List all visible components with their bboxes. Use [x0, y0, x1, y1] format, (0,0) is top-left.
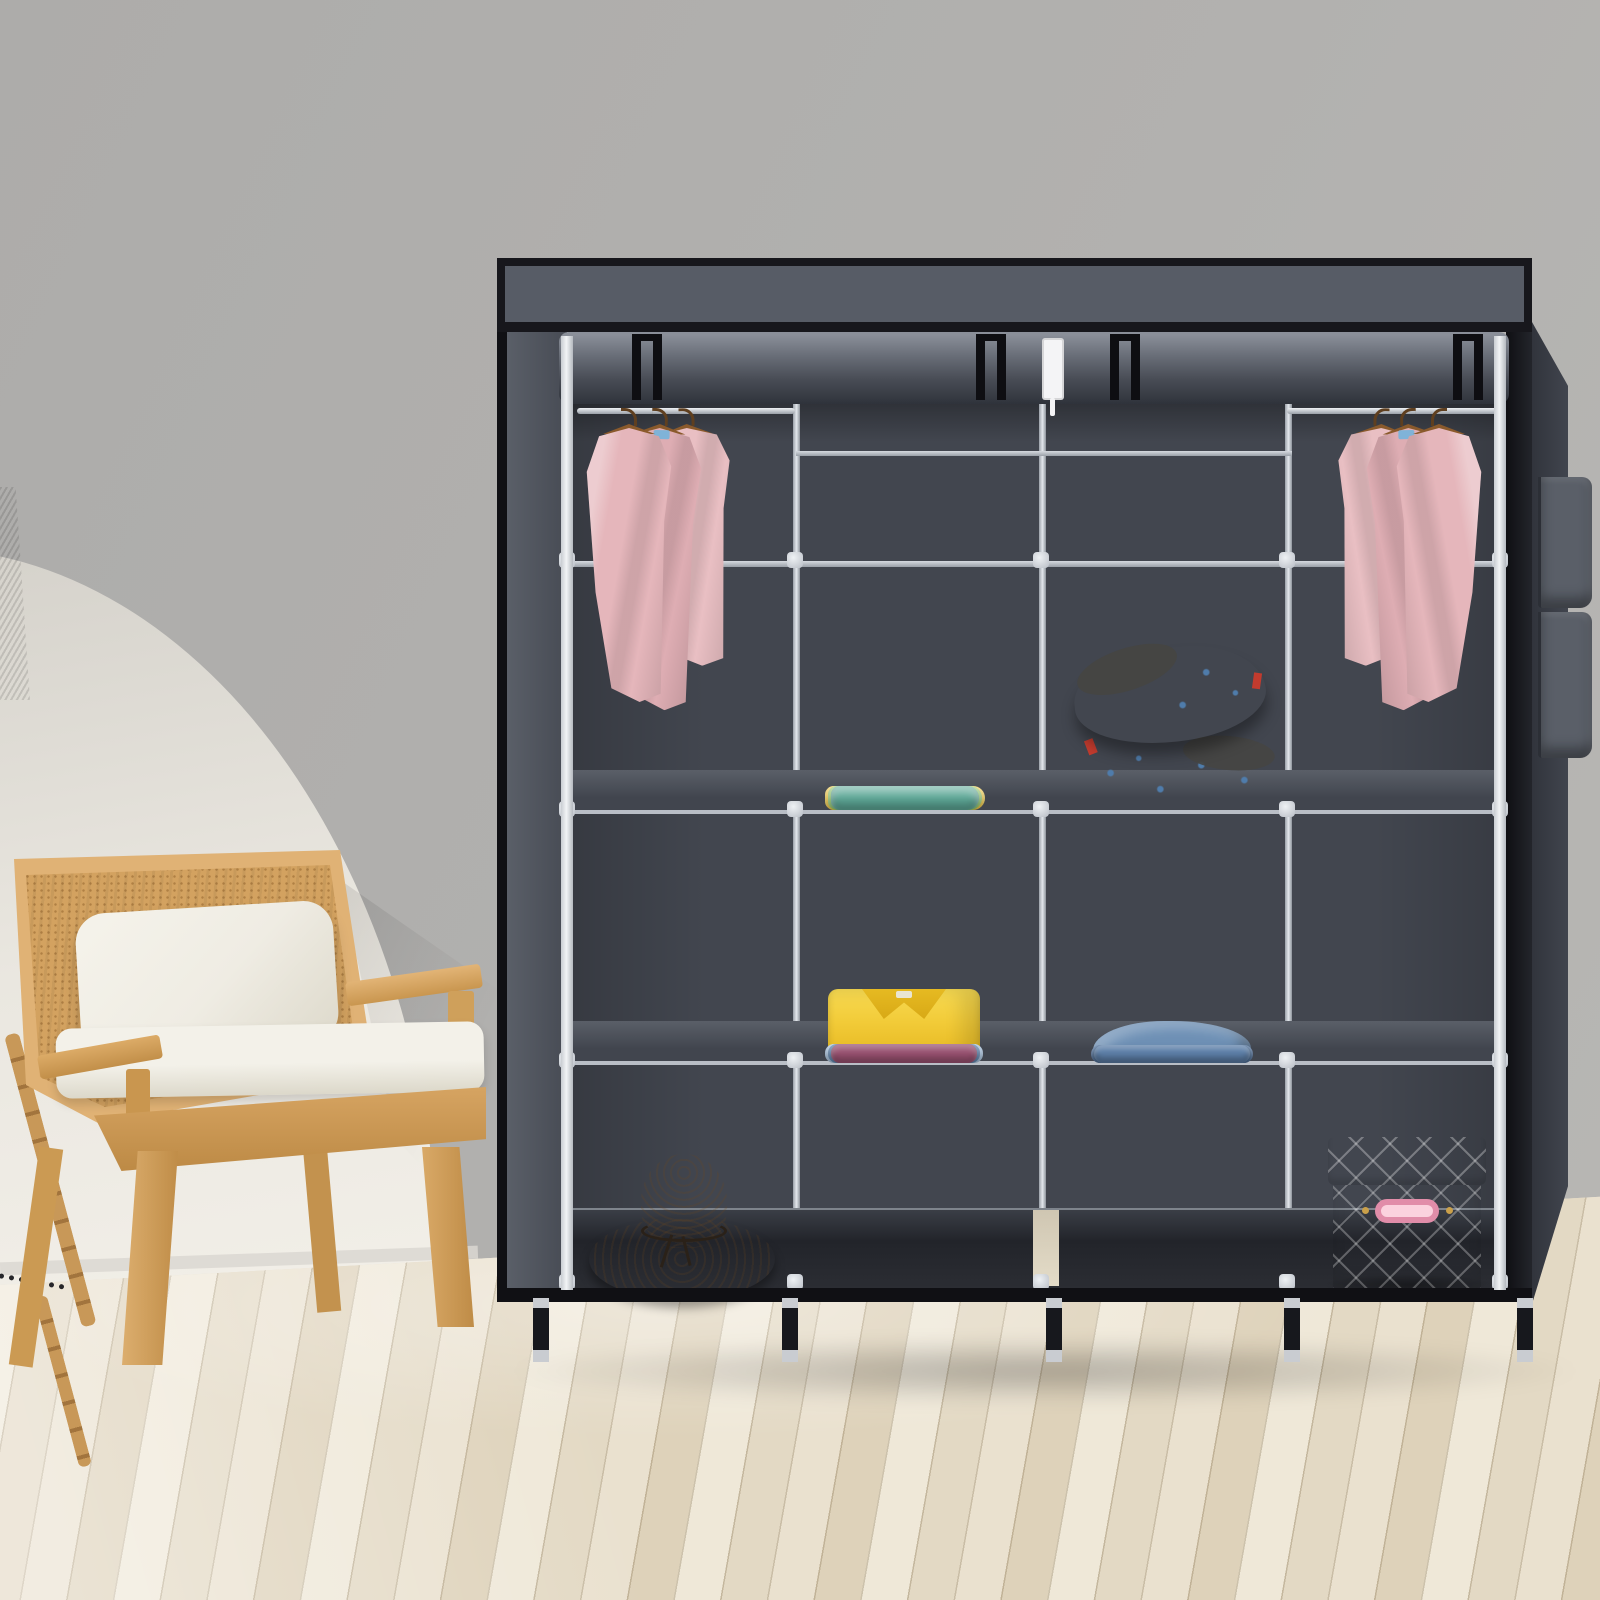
chair-rear-left-leg: [9, 1146, 63, 1367]
pink-storage-box: [1328, 1137, 1486, 1290]
frame-pole-3: [1285, 402, 1292, 1290]
storage-box-stud: [1362, 1207, 1369, 1214]
folded-jeans-layer: [1094, 1045, 1250, 1063]
fabric-wardrobe: [497, 258, 1568, 1368]
straw-hat: [589, 1154, 775, 1304]
front-piping-right: [1494, 336, 1506, 1290]
wardrobe-left-frame-edge: [497, 332, 507, 1290]
frame-rail-top: [796, 451, 1292, 456]
wardrobe-leg: [533, 1298, 549, 1362]
frame-connector: [1033, 801, 1049, 817]
frame-connector: [1279, 552, 1295, 568]
shirt-body: [585, 428, 673, 702]
cover-zipper: [1042, 338, 1064, 400]
wardrobe-bottom-rail: [497, 1288, 1532, 1302]
chair-front-left-leg: [122, 1151, 178, 1365]
cover-strap: [1453, 334, 1483, 400]
frame-connector: [787, 1052, 803, 1068]
hanger-hook: [1431, 408, 1447, 426]
storage-box-stud: [1446, 1207, 1453, 1214]
rolled-up-cover: [559, 332, 1509, 404]
frame-pole-1: [793, 402, 800, 1290]
wardrobe-top-panel: [497, 258, 1532, 332]
frame-connector: [787, 801, 803, 817]
frame-connector: [1279, 801, 1295, 817]
folded-shirt-stack: [822, 873, 986, 1063]
hanging-pink-shirt: [585, 410, 673, 702]
cover-strap: [976, 334, 1006, 400]
storage-box-lid: [1328, 1137, 1486, 1185]
hanger-hook: [621, 408, 637, 426]
front-piping-left: [561, 336, 573, 1290]
folded-towel: [831, 786, 979, 810]
shirt-body: [1395, 428, 1483, 702]
chair-rear-right-leg: [303, 1144, 341, 1312]
chair-front-right-leg: [422, 1147, 474, 1327]
wardrobe-leg: [1517, 1298, 1533, 1362]
folded-shirt-layer: [831, 1044, 977, 1063]
wardrobe-right-side-wall: [1532, 322, 1568, 1304]
frame-connector: [787, 552, 803, 568]
room-scene: [0, 0, 1600, 1600]
wardrobe-side-pocket-2: [1538, 612, 1592, 758]
storage-box-handle: [1375, 1199, 1439, 1223]
pillow-tag: [1252, 672, 1262, 689]
frame-connector: [1279, 1052, 1295, 1068]
towel-stack: [824, 686, 986, 810]
wardrobe-left-side-panel: [507, 332, 567, 1290]
hanging-pink-shirt: [1395, 410, 1483, 702]
frame-connector: [1033, 552, 1049, 568]
frame-connector: [1033, 1052, 1049, 1068]
jeans-stack: [1089, 877, 1255, 1063]
cover-strap: [632, 334, 662, 400]
cover-strap: [1110, 334, 1140, 400]
wardrobe-side-pocket-1: [1538, 477, 1592, 608]
polo-neck-tag: [896, 991, 912, 998]
wardrobe-leg: [1284, 1298, 1300, 1362]
frame-pole-2: [1039, 402, 1046, 1290]
hanging-shirts-right: [1333, 410, 1483, 720]
wardrobe-leg: [782, 1298, 798, 1362]
wardrobe-right-frame-edge: [1506, 332, 1532, 1290]
armchair: [10, 845, 490, 1390]
hanging-shirts-left: [585, 410, 735, 720]
wardrobe-leg: [1046, 1298, 1062, 1362]
